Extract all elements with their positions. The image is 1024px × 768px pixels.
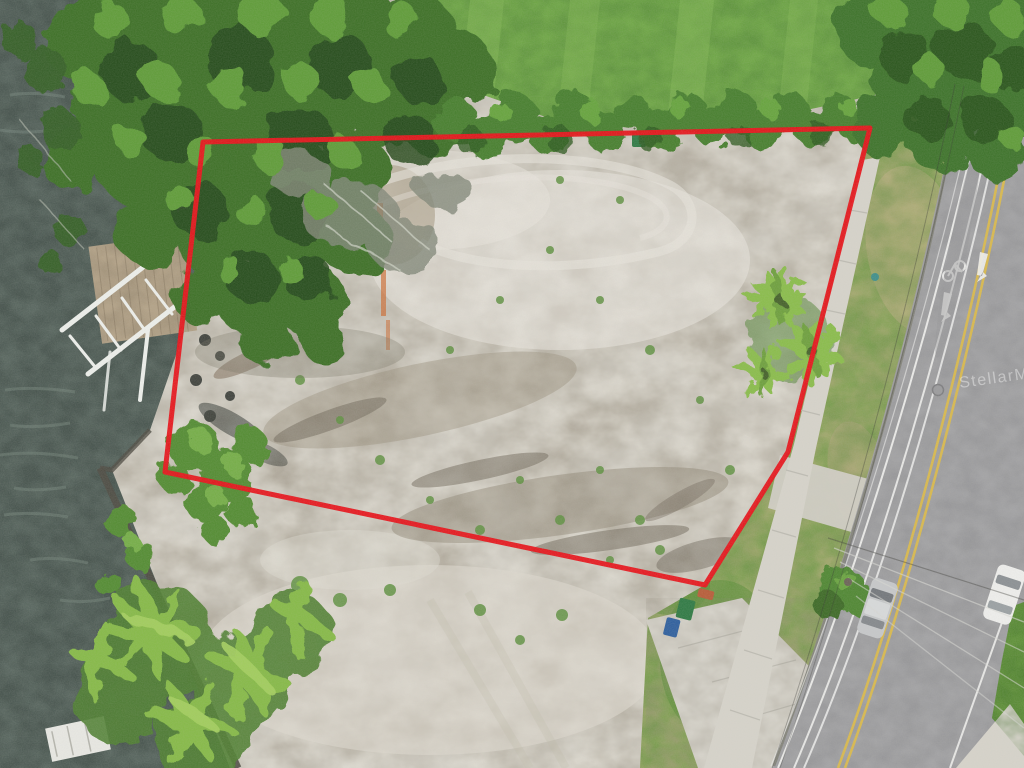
photo-grain-overlay — [0, 0, 1024, 768]
aerial-photo: StellarMLS — [0, 0, 1024, 768]
aerial-photo-canvas: StellarMLS — [0, 0, 1024, 768]
